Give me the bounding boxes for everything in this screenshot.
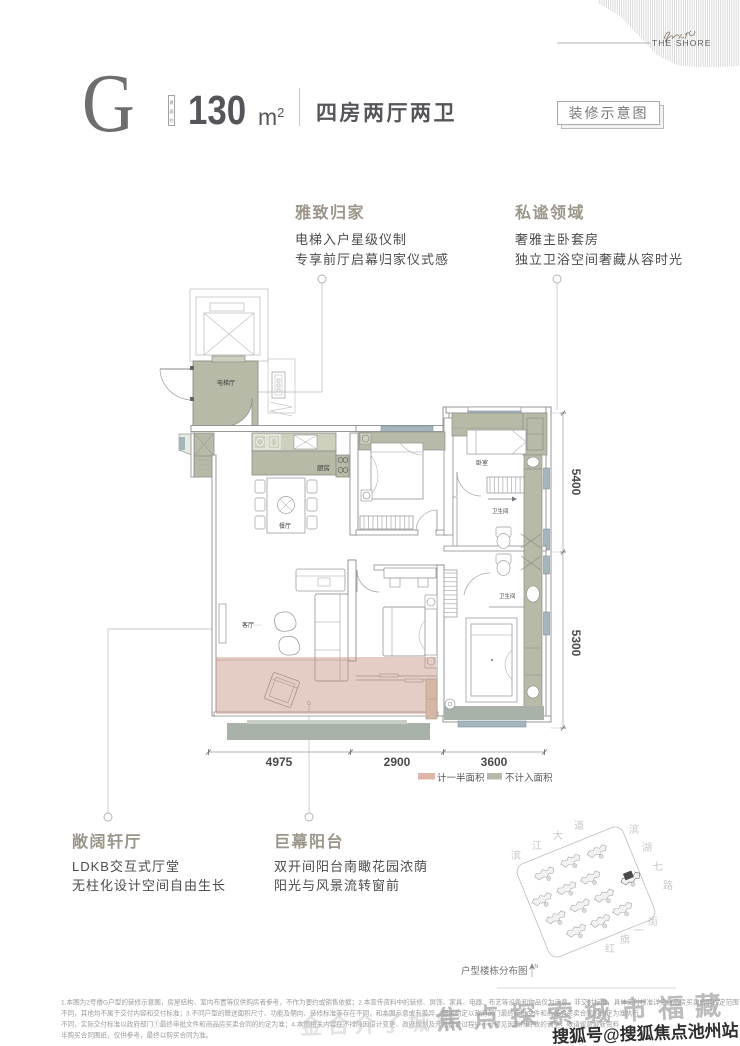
svg-text:路: 路 (663, 879, 673, 892)
svg-text:滨: 滨 (511, 849, 521, 862)
svg-text:街: 街 (648, 915, 658, 928)
svg-text:户型楼栋分布图: 户型楼栋分布图 (461, 965, 528, 977)
svg-text:湖: 湖 (642, 842, 652, 854)
svg-text:大: 大 (553, 829, 563, 842)
svg-text:七: 七 (653, 861, 663, 873)
svg-text:一: 一 (634, 926, 644, 937)
svg-text:红: 红 (605, 942, 615, 955)
svg-text:滨: 滨 (629, 823, 639, 836)
svg-text:旗: 旗 (620, 933, 630, 946)
svg-text:江: 江 (532, 840, 542, 852)
svg-text:N: N (535, 964, 539, 970)
svg-text:道: 道 (574, 819, 584, 832)
